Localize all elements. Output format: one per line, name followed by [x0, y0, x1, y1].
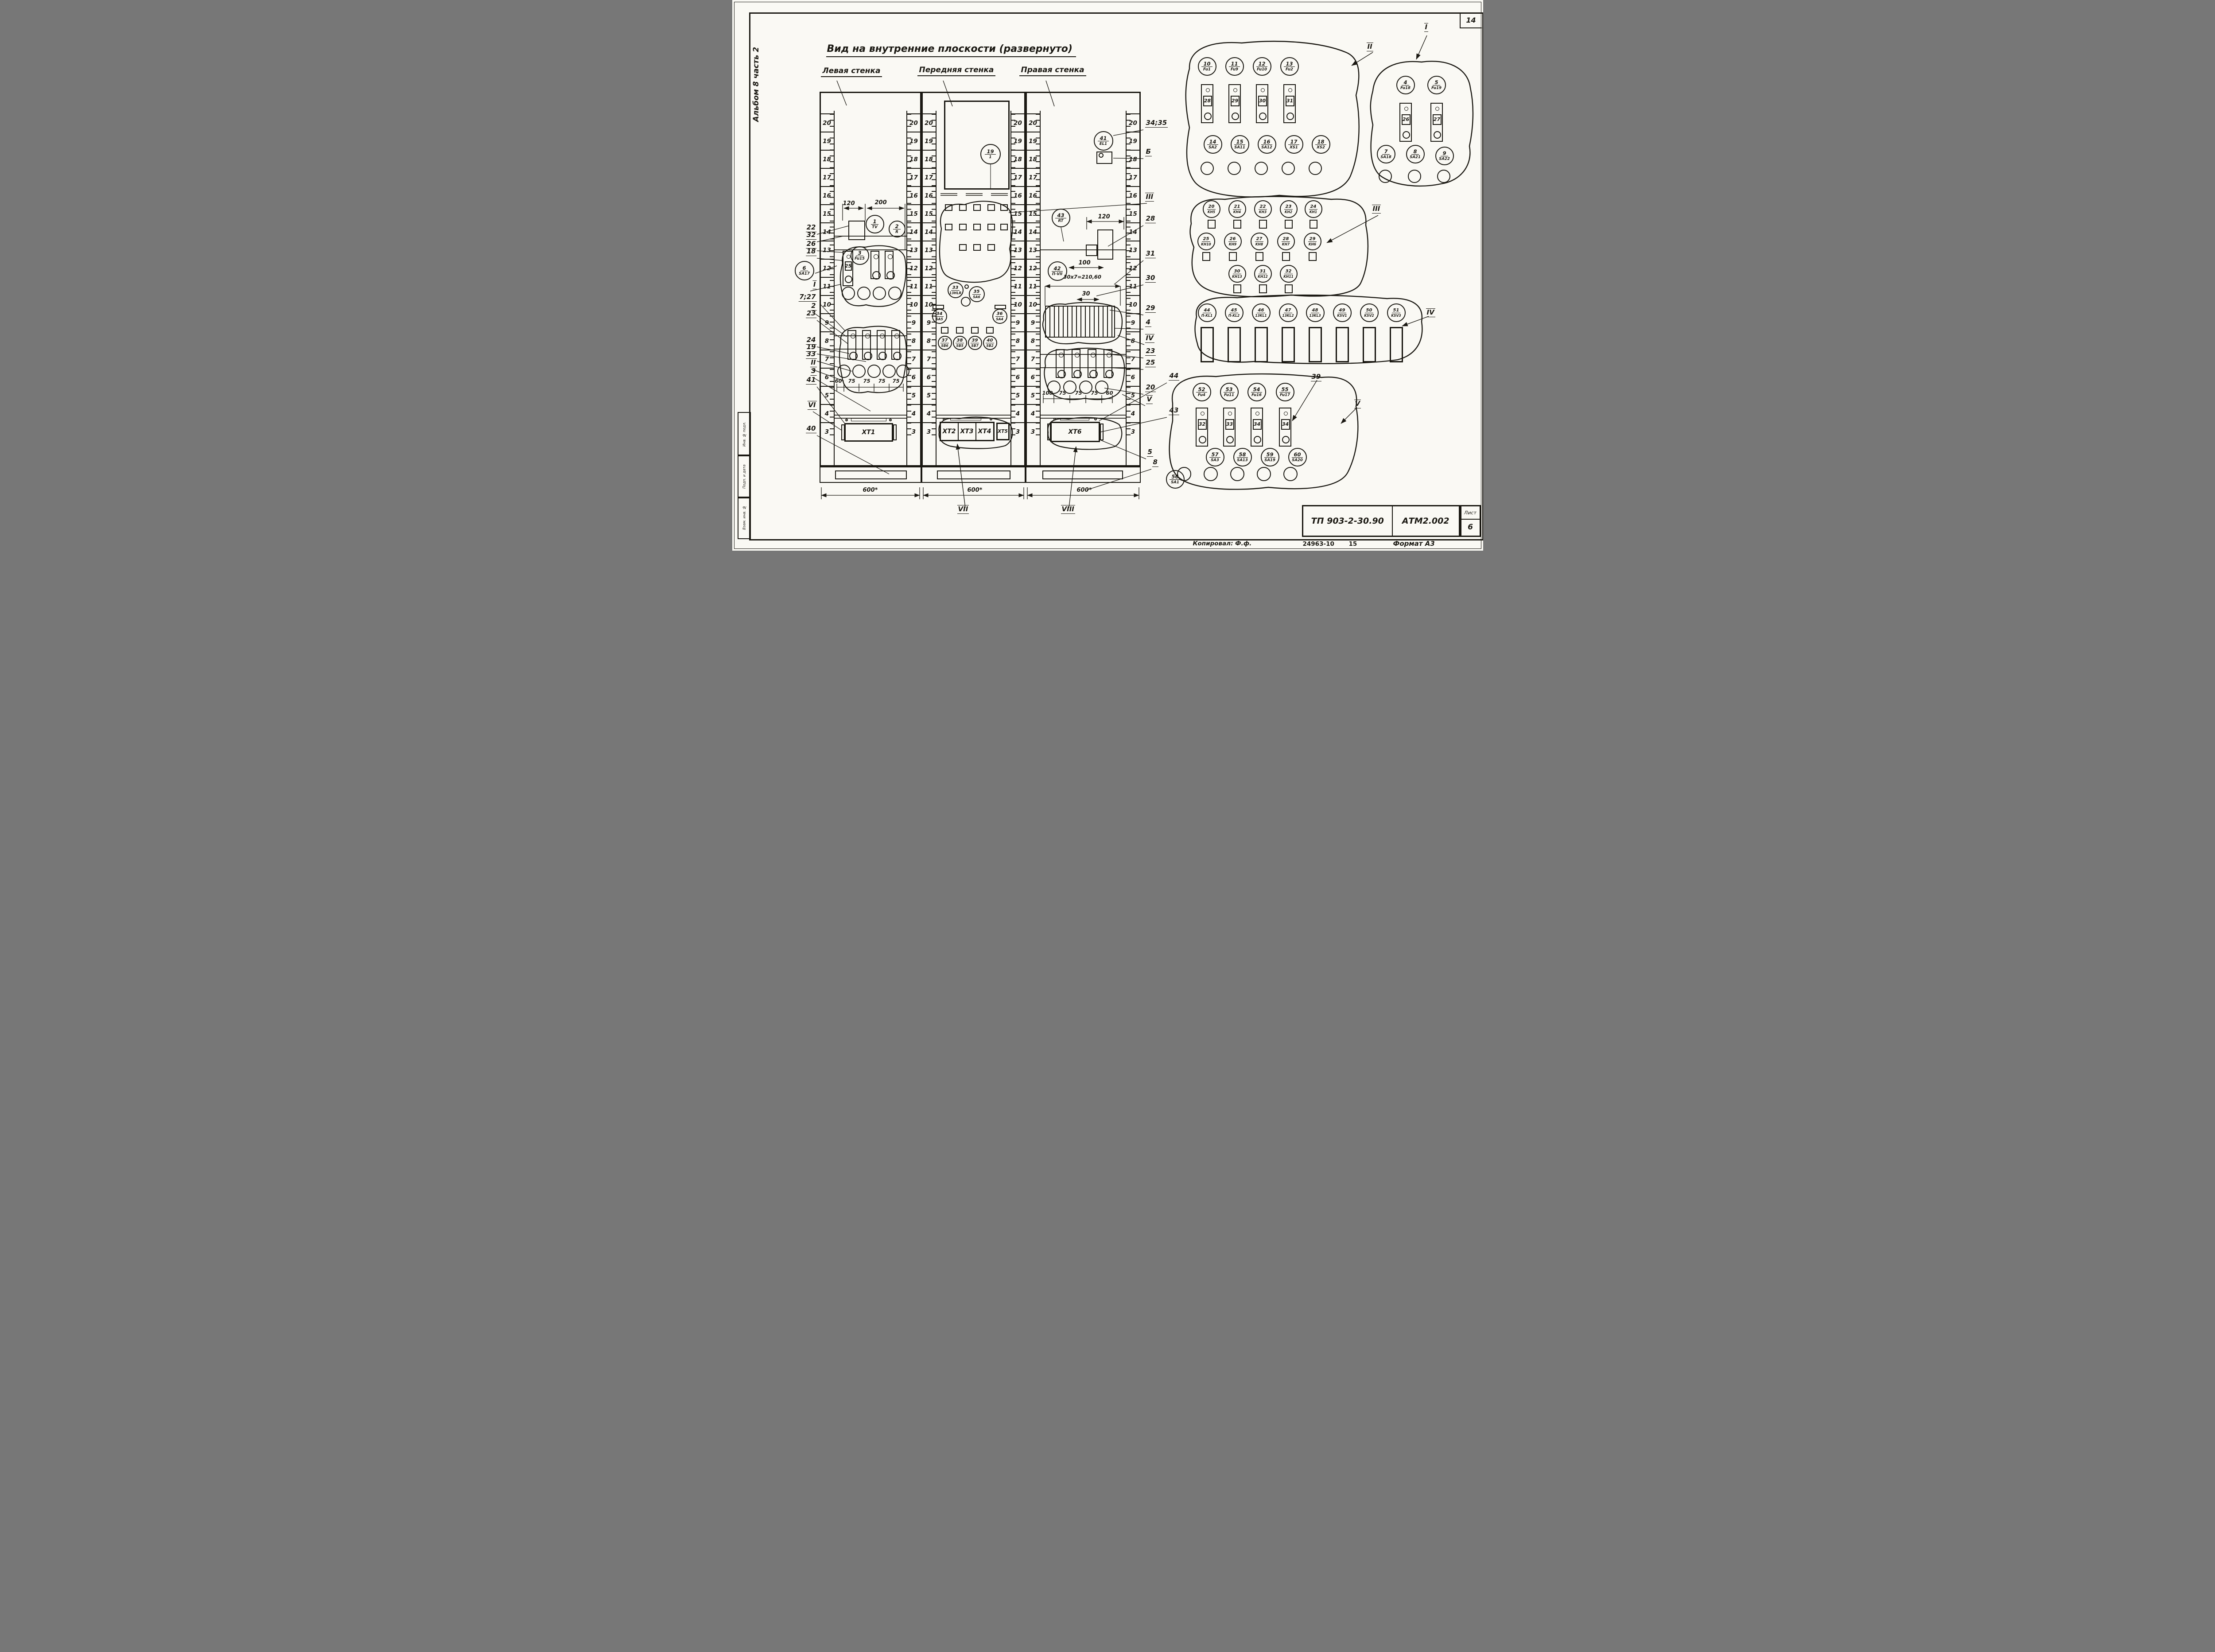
stamp-label-2: Подп. и дата [738, 455, 750, 498]
switch-body [847, 330, 856, 360]
fuse-holder: 26 [1399, 103, 1412, 142]
callout-label: 3 [810, 367, 816, 376]
component-tag: П-VII [1052, 272, 1063, 276]
plain-circle [1201, 162, 1214, 175]
relay-slot [1336, 327, 1349, 362]
holder-number: 25 [845, 261, 852, 271]
contact-square [1000, 204, 1008, 211]
switch-circle [849, 352, 858, 360]
terminal-bolt [1094, 418, 1097, 420]
panel-title-left: Левая стенка [821, 66, 882, 77]
callout-label: 18 [806, 248, 817, 256]
component-circle: 34SA5 [932, 309, 947, 324]
panel-left-wall [820, 92, 921, 466]
component-circle: 6SA17 [795, 261, 814, 280]
contact-square [945, 204, 952, 211]
group-label: I [1424, 23, 1429, 32]
contact-square [1259, 284, 1267, 293]
panel-right-plinth [1042, 470, 1123, 479]
component-tag: SA21 [1410, 155, 1421, 159]
plain-circle [1257, 467, 1271, 481]
sheet-no: 6 [1461, 519, 1480, 536]
component-tag: Fu9 [1231, 67, 1238, 72]
relay-slot [1282, 327, 1295, 362]
contact-square [959, 224, 967, 230]
component-circle: 8SA21 [1406, 145, 1425, 163]
overall-dim: 600* [1077, 487, 1092, 494]
contact-square [1202, 252, 1210, 261]
terminal-cell: XT4 [976, 423, 993, 440]
switch-circle [893, 352, 902, 360]
component-number: 16 [1261, 139, 1272, 145]
terminal-slot [851, 418, 886, 421]
component-circle: 3313HLR [948, 282, 964, 298]
terminal-end-plate [1047, 424, 1051, 440]
spacing-dim: 75 [893, 378, 900, 384]
switch-circle [878, 352, 887, 360]
switch-dot [1059, 353, 1064, 358]
callout-label: II [810, 358, 816, 367]
component-number: 28 [1282, 237, 1290, 242]
component-tag: 1 [989, 155, 992, 159]
component-circle: 53Fu11 [1220, 383, 1239, 401]
component-circle: 4613KL1 [1252, 303, 1271, 322]
component-tag: Fu15 [855, 256, 865, 261]
component-number: 40 [986, 338, 995, 343]
callout-label: 43 [1169, 407, 1180, 415]
component-circle: 3Fu15 [851, 246, 869, 265]
switch-body [862, 330, 871, 360]
component-tag: KH1 [1310, 210, 1317, 214]
terminal-end-plate [1100, 424, 1104, 440]
component-tag: 13KL3 [1309, 313, 1321, 318]
contact-square [941, 327, 948, 334]
component-tag: SA5 [936, 317, 943, 321]
component-circle: 43RT [1052, 209, 1070, 227]
spacing-dim: 75 [1091, 390, 1098, 396]
panel-front-plinth [937, 470, 1010, 479]
terminal-block: XT2XT3XT4 [940, 422, 995, 441]
fuse-holder: 33 [1223, 408, 1236, 447]
callout-label: Б [1145, 148, 1152, 156]
holder-number: 33 [1225, 419, 1234, 430]
contact-square [1255, 252, 1263, 261]
component-number: 27 [1255, 237, 1264, 242]
switch-body [1088, 349, 1096, 378]
component-number: 57 [1209, 452, 1220, 458]
component-circle: 16SA12 [1258, 135, 1276, 154]
panel-left-plinth [835, 470, 907, 479]
relay-slot [1201, 327, 1214, 362]
component-tag: XS1 [1290, 145, 1298, 150]
component-tag: EL1 [1100, 141, 1107, 146]
component-number: 25 [1202, 237, 1211, 242]
holder-circle [1403, 131, 1410, 139]
component-number: 47 [1284, 308, 1293, 313]
component-circle: 44П-KL1 [1198, 303, 1216, 322]
component-number: 38 [956, 338, 964, 343]
component-circle: 31KH12 [1254, 265, 1272, 283]
component-number: 18 [1315, 139, 1326, 145]
switch-body [885, 251, 894, 279]
fuse-holder: 29 [1228, 84, 1241, 123]
switch-dot [1075, 353, 1080, 358]
main-title: Вид на внутренние плоскости (развернуто) [826, 43, 1076, 57]
group-label: V [1354, 400, 1361, 408]
component-tag: KSV3 [1391, 313, 1401, 318]
component-circle: 22KH3 [1254, 200, 1272, 218]
component-tag: SA13 [1237, 458, 1248, 463]
component-number: 41 [1098, 136, 1108, 142]
component-number: 30 [1233, 269, 1242, 274]
switch-circle [872, 271, 881, 280]
component-number: 48 [1311, 308, 1320, 313]
lamp-box [1096, 152, 1112, 164]
component-number: 60 [1292, 452, 1302, 458]
terminal-end-plate [841, 424, 845, 440]
album-label: Альбом 8 часть 2 [752, 35, 761, 133]
contact-square [987, 244, 995, 251]
contact-square [1285, 284, 1293, 293]
terminal-block: XT5 [996, 423, 1010, 440]
relay-slot [1228, 327, 1241, 362]
component-number: 8 [1411, 149, 1418, 155]
component-circle: 4Fu18 [1396, 76, 1415, 94]
component-tag: 13KL1 [1255, 313, 1267, 318]
switch-dot [894, 334, 899, 338]
plain-circle [1230, 467, 1244, 481]
component-circle: 40SB2 [983, 336, 997, 350]
switch-body [891, 330, 900, 360]
component-tag: KH12 [1258, 274, 1268, 279]
component-tag: SA4 [996, 317, 1003, 321]
switch-circle [1057, 370, 1066, 378]
contact-square [1000, 224, 1008, 230]
component-number: 31 [1259, 269, 1267, 274]
spacing-dim: 60 [835, 378, 842, 384]
callout-label: 29 [1145, 304, 1156, 313]
spacing-dim: 100 [1042, 390, 1053, 396]
component-circle: 39SB7 [968, 336, 982, 350]
plain-circle [852, 365, 866, 378]
holder-number: 34 [1281, 419, 1290, 430]
component-number: 1 [871, 219, 878, 225]
switch-dot [851, 334, 855, 338]
spacing-dim: 75 [848, 378, 855, 384]
component-number: 45 [1230, 308, 1239, 313]
sheet-number-box: 14 [1460, 12, 1482, 28]
holder-circle [1199, 436, 1206, 443]
component-tag: SB7 [971, 343, 978, 348]
fuse-holder: 30 [1256, 84, 1268, 123]
terminal-end-plate [893, 424, 897, 440]
holder-number: 34 [1253, 419, 1262, 430]
terminal-bolt [990, 418, 992, 420]
callout-label: IV [1145, 334, 1154, 343]
plain-circle [867, 365, 881, 378]
callout-label: 20 [1145, 384, 1156, 392]
callout-label: 33 [806, 350, 817, 359]
plain-circle [837, 365, 851, 378]
plain-circle [888, 287, 902, 300]
stamp-label-3: Взам. инв. № [738, 498, 750, 538]
spacing-dim: 75 [1059, 390, 1066, 396]
component-number: 7 [1382, 149, 1389, 155]
contact-square [1229, 252, 1237, 261]
contact-square [973, 204, 981, 211]
component-circle: 58SA13 [1233, 448, 1252, 466]
component-tag: KH10 [1201, 242, 1211, 246]
switch-dot [865, 334, 870, 338]
dimension-label: 120 [1098, 214, 1110, 220]
component-circle: 20KH5 [1203, 200, 1220, 218]
spacing-dim: 75 [1075, 390, 1082, 396]
fuse-holder: 25 [843, 251, 853, 286]
callout-label: 8 [1152, 459, 1158, 467]
callout-label: 44 [1169, 372, 1180, 381]
component-number: 51 [1392, 308, 1401, 313]
component-tag: SA22 [1439, 156, 1450, 161]
overall-dim: 600* [968, 487, 983, 494]
component-tag: Fu2 [1286, 67, 1293, 72]
callout-label: 28 [1145, 215, 1156, 223]
component-circle: 14SA2 [1204, 135, 1222, 154]
spacing-dim: 75 [878, 378, 886, 384]
title-block-code: ТП 903-2-30.90 [1303, 506, 1393, 536]
component-number: 29 [1308, 237, 1317, 242]
terminal-block: XT6 [1050, 422, 1100, 442]
component-tag: Fu4 [1198, 393, 1205, 397]
sheet-number: 14 [1466, 16, 1476, 24]
title-block: ТП 903-2-30.90 АТМ2.002 [1302, 505, 1460, 537]
contactor-body [1097, 229, 1113, 260]
component-circle: 45П-KL2 [1225, 303, 1244, 322]
component-tag: TV [872, 225, 877, 229]
holder-dot [1288, 88, 1292, 92]
component-tag: XS2 [1317, 145, 1325, 150]
component-circle: 23KH2 [1280, 200, 1298, 218]
contact-square [945, 224, 952, 230]
component-number: 21 [1233, 204, 1242, 210]
holder-dot [1206, 88, 1210, 92]
fuse-holder: 28 [1201, 84, 1213, 123]
contact-square [956, 327, 964, 334]
component-tag: SA19 [1264, 458, 1275, 463]
callout-label: III [1145, 193, 1154, 202]
holder-dot [1201, 412, 1205, 416]
title-block-sheet-col: Лист 6 [1460, 505, 1481, 537]
component-circle: 50KSV2 [1360, 303, 1379, 322]
dimension-label: 100 [1079, 260, 1091, 266]
front-window [944, 101, 1010, 190]
terminal-cell: XT2 [941, 423, 959, 440]
holder-dot [1404, 107, 1408, 111]
overall-dim: 600* [863, 487, 878, 494]
holder-circle [1254, 436, 1261, 443]
group-label: II [1367, 43, 1373, 51]
component-number: 11 [1229, 61, 1240, 67]
switch-circle [1073, 370, 1082, 378]
switch-circle [1089, 370, 1098, 378]
switch-circle [1105, 370, 1114, 378]
switch-dot [874, 254, 878, 259]
contact-square [1282, 252, 1290, 261]
contact-square [1259, 220, 1267, 229]
callout-label: 5 [1147, 448, 1153, 457]
component-circle: 38SB5 [953, 336, 967, 350]
holder-circle [1204, 113, 1212, 120]
group-label: IV [1426, 308, 1435, 317]
component-number: 26 [1228, 237, 1237, 242]
component-circle: 7SA18 [1377, 145, 1395, 163]
holder-number: 30 [1258, 96, 1267, 106]
plain-circle [1408, 170, 1421, 183]
component-number: 32 [1284, 269, 1293, 274]
component-circle: 17XS1 [1285, 135, 1303, 154]
contact-square [1309, 252, 1317, 261]
component-number: 44 [1203, 308, 1212, 313]
plain-circle [1228, 162, 1241, 175]
spacing-dim: 75 [863, 378, 870, 384]
holder-dot [1255, 412, 1259, 416]
switch-circle [886, 271, 895, 280]
holder-number: 29 [1231, 96, 1240, 106]
component-circle: 5Fu19 [1427, 76, 1446, 94]
component-circle: 25KH10 [1197, 233, 1215, 250]
holder-number: 32 [1198, 419, 1207, 430]
component-number: 39 [971, 338, 979, 343]
component-tag: R [895, 229, 898, 234]
terminal-block: XT1 [844, 423, 893, 442]
dimension-label: 30 [1082, 291, 1090, 297]
component-circle: 28KH7 [1277, 233, 1295, 250]
terminal-bolt [889, 419, 892, 421]
component-circle: 27KH8 [1251, 233, 1268, 250]
switch-dot [1091, 353, 1096, 358]
component-tag: 13KL2 [1282, 313, 1294, 318]
holder-number: 31 [1286, 96, 1294, 106]
component-tag: SB6 [941, 343, 948, 348]
switch-body [1056, 349, 1065, 378]
holder-dot [1228, 412, 1232, 416]
callout-label: 30 [1145, 274, 1156, 283]
component-number: 15 [1234, 139, 1245, 145]
plain-circle [964, 284, 969, 289]
holder-circle [845, 276, 852, 283]
component-number: 12 [1256, 61, 1267, 67]
fuse-holder: 27 [1430, 103, 1443, 142]
dimension-label: 120 [843, 200, 855, 207]
callout-label: 23 [806, 310, 817, 318]
callout-label: 40 [806, 425, 817, 433]
contact-square [987, 204, 995, 211]
relay-slot [1390, 327, 1403, 362]
spacing-dim: 60 [1106, 390, 1113, 396]
component-number: 13 [1284, 61, 1294, 67]
component-circle: 2R [889, 221, 905, 237]
holder-dot [1284, 412, 1288, 416]
callout-label: I [812, 280, 817, 289]
component-number: 55 [1279, 387, 1290, 393]
component-circle: 32KH11 [1280, 265, 1298, 283]
component-tag: П-KL2 [1228, 313, 1240, 318]
holder-number: 28 [1203, 96, 1212, 106]
fuse-holder: 32 [1196, 408, 1208, 447]
component-tag: KSV2 [1364, 313, 1374, 318]
holder-circle [1286, 113, 1294, 120]
component-circle: 15SA11 [1231, 135, 1249, 154]
plain-circle [961, 297, 971, 307]
stamp-cell-1: Инв. № подл. [738, 412, 751, 456]
switch-dot [880, 334, 885, 338]
component-tag: SB2 [986, 343, 993, 348]
component-number: 43 [1055, 213, 1066, 219]
contact-square [1233, 284, 1241, 293]
switch-dot [1107, 353, 1111, 358]
holder-circle [1259, 113, 1267, 120]
group-label: III [1372, 205, 1381, 214]
component-tag: SA6 [973, 295, 980, 299]
switch-body [877, 330, 886, 360]
component-circle: 37SB6 [938, 336, 952, 350]
component-circle: 35SA6 [969, 286, 985, 302]
component-tag: Fu17 [1280, 393, 1290, 397]
holder-number: 26 [1402, 114, 1411, 125]
holder-circle [1226, 436, 1234, 443]
switch-dot [888, 254, 893, 259]
copied-by: Копировал: Ф.ф. [1193, 540, 1252, 547]
component-circle: 11Fu9 [1225, 57, 1244, 76]
component-tag: 13HLR [949, 291, 961, 295]
component-number: 20 [1207, 204, 1216, 210]
order-number: 24963-10 [1303, 540, 1334, 548]
component-number: 46 [1257, 308, 1266, 313]
component-circle: 1TV [866, 215, 884, 233]
component-number: 24 [1309, 204, 1318, 210]
component-number: 56 [1170, 474, 1180, 480]
component-number: 5 [1433, 80, 1440, 86]
plain-circle [857, 287, 870, 300]
component-number: 52 [1196, 387, 1207, 393]
component-number: 35 [972, 289, 981, 295]
component-tag: Fu19 [1431, 86, 1442, 90]
callout-label: 34;35 [1145, 119, 1168, 128]
component-number: 59 [1264, 452, 1275, 458]
title-block-doc: АТМ2.002 [1393, 506, 1459, 536]
dimension-label: 200 [875, 199, 887, 206]
holder-circle [1434, 131, 1441, 139]
component-number: 3 [856, 250, 863, 257]
callout-label: VI [807, 401, 816, 410]
component-circle: 12Fu10 [1253, 57, 1271, 76]
component-circle: 56SA1 [1166, 470, 1185, 489]
component-circle: 49KSV1 [1333, 303, 1352, 322]
plain-circle [1282, 162, 1295, 175]
holder-circle [1282, 436, 1290, 443]
lamp-hole [1099, 153, 1104, 158]
contact-square [987, 224, 995, 230]
contact-square [959, 204, 967, 211]
component-number: 4 [1402, 80, 1409, 86]
component-tag: SA12 [1261, 145, 1272, 150]
holder-number: 27 [1433, 114, 1442, 125]
component-tag: KH5 [1208, 210, 1215, 214]
component-number: 50 [1365, 308, 1374, 313]
holder-dot [1261, 88, 1265, 92]
component-tag: SB5 [956, 343, 963, 348]
switch-body [870, 251, 879, 279]
component-number: 2 [893, 224, 900, 230]
